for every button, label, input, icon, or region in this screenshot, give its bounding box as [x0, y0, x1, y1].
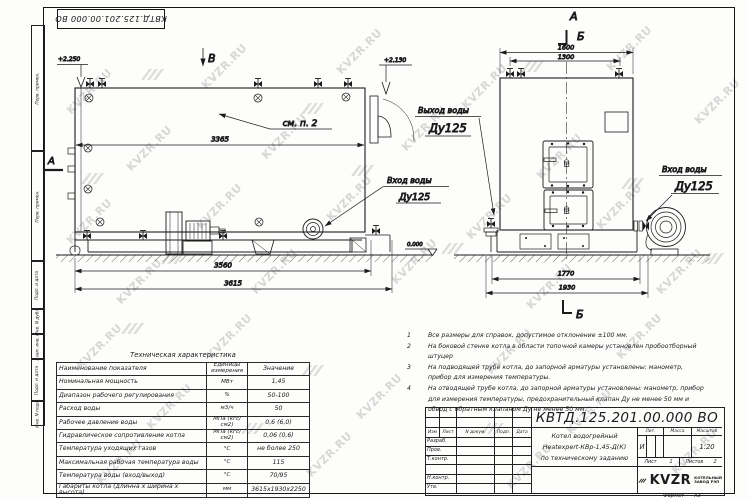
- dim-1300: 1300: [558, 53, 575, 61]
- inlet-water-label: Вход воды: [662, 165, 707, 174]
- spec-col-units: Единицы измерения: [207, 363, 248, 376]
- margin-label: Подп. и дата: [36, 270, 41, 299]
- section-a-label: А: [47, 156, 55, 167]
- mass-label: Масса: [664, 428, 692, 436]
- title-block-cell: [457, 484, 495, 493]
- title-block-cell: [513, 456, 532, 465]
- doc-col-podp: Подп.: [495, 428, 513, 438]
- sheets-cell: Листов 2: [680, 458, 722, 467]
- spec-cell-units: мм: [207, 483, 248, 497]
- spec-row: Гидравлическое сопротивление котлаМПа (к…: [57, 429, 310, 442]
- spec-row: Габариты котла (длинна х ширина х высота…: [57, 483, 310, 497]
- note-number: 1: [407, 331, 428, 342]
- margin-box-perv-primen-2: Перв. примен.: [31, 150, 45, 262]
- document-name-line: по техническому заданию: [532, 453, 637, 464]
- margin-box-vzam-inv: Взам. инв. N: [31, 333, 45, 360]
- section-b-bottom-label: Б: [576, 308, 584, 321]
- spec-row: Расход водым3/ч50: [57, 403, 310, 416]
- title-block-cell: [513, 475, 532, 484]
- spec-cell-units: МПа (кгс/см2): [207, 416, 248, 429]
- lit-value: И: [638, 436, 647, 458]
- spec-cell-value: не более 250: [248, 443, 310, 456]
- note-item: 2 На боковой стенке котла в области топо…: [407, 342, 707, 363]
- title-block-cell: [495, 456, 513, 465]
- dim-3615: 3615: [224, 280, 242, 288]
- spec-cell-value: 50-100: [248, 389, 310, 402]
- dim-3365: 3365: [211, 136, 229, 144]
- spec-cell-units: °С: [207, 443, 248, 456]
- title-block: КВТД.125.201.00.000 ВО Изм Лист N докум.…: [425, 407, 725, 496]
- title-block-cell: [457, 465, 495, 475]
- title-block-cell: [457, 438, 495, 447]
- scale-value: 1:20: [692, 436, 722, 458]
- spec-cell-name: Температура уходящих газов: [57, 443, 207, 456]
- document-name-cell: Котел водогрейный Heatexpert-КВр-1,45-Д(…: [532, 428, 638, 467]
- spec-row: Максимальная рабочая температура воды°С1…: [57, 456, 310, 469]
- title-block-cell: [513, 408, 532, 418]
- sheet-label: Лист: [644, 460, 656, 465]
- title-block-cell: [457, 475, 495, 484]
- spec-col-name: Наименование показателя: [57, 363, 207, 376]
- scale-label: Масштаб: [692, 428, 722, 436]
- spec-cell-name: Номинальная мощность: [57, 376, 207, 389]
- spec-cell-name: Расход воды: [57, 403, 207, 416]
- title-block-cell: [495, 408, 513, 418]
- see-note-label: см. п. 2: [283, 119, 318, 129]
- inlet-water-label: Вход воды: [387, 176, 432, 185]
- format-note: Формат А3: [612, 493, 750, 499]
- margin-box-podp-data-1: Подп. и дата: [31, 260, 45, 310]
- kvzr-logo-icon: [638, 474, 647, 487]
- spec-cell-name: Температура воды (вход/выход): [57, 470, 207, 483]
- note-item: 1 Все размеры для справок, допустимое от…: [407, 331, 707, 342]
- title-block-cell: [495, 475, 513, 484]
- title-block-cell: [495, 447, 513, 456]
- side-view-drawing: +2.250 +2.130 В см. п. 2 3365 А: [45, 48, 449, 293]
- title-block-cell: [513, 438, 532, 447]
- elevation-label: +2.250: [58, 56, 80, 63]
- company-name: KVZR: [650, 473, 692, 488]
- note-number: 2: [407, 342, 428, 363]
- inlet-dn-label: Ду125: [674, 179, 713, 193]
- spec-row: Номинальная мощностьМВт1,45: [57, 376, 310, 389]
- note-text: Все размеры для справок, допустимое откл…: [428, 331, 707, 342]
- notes-list: 1 Все размеры для справок, допустимое от…: [407, 331, 707, 416]
- title-block-cell: [513, 484, 532, 493]
- margin-label: Инв. N подл.: [36, 399, 41, 427]
- title-block-cell: [495, 484, 513, 493]
- sheet-value: 1: [669, 460, 672, 465]
- spec-table-title: Техническая характеристика: [56, 351, 310, 359]
- spec-cell-units: %: [207, 389, 248, 402]
- title-block-cell: [440, 418, 457, 428]
- role-tkontr: Т.контр.: [426, 456, 457, 465]
- title-block-cell: [532, 467, 638, 493]
- document-code-stamp-text: КВТД.125.201.00.000 ВО: [55, 14, 167, 24]
- margin-label: Перв. примен.: [36, 190, 41, 222]
- title-block-cell: [495, 438, 513, 447]
- title-block-cell: [440, 408, 457, 418]
- format-label: Формат: [663, 493, 684, 499]
- title-block-cell: [513, 447, 532, 456]
- spec-row: Диапазон рабочего регулирования%50-100: [57, 389, 310, 402]
- title-block-cell: [495, 465, 513, 475]
- front-inlet-callout: Вход воды Ду125: [646, 165, 722, 221]
- margin-label: Инв. N дубл.: [36, 307, 41, 335]
- title-block-cell: [457, 447, 495, 456]
- spec-cell-value: 70/95: [248, 470, 310, 483]
- spec-cell-value: 0,06 (0,6): [248, 429, 310, 442]
- spec-cell-units: °С: [207, 470, 248, 483]
- spec-cell-value: 3615х1930х2250: [248, 483, 310, 497]
- outlet-dn-label: Ду125: [428, 121, 467, 135]
- role-razrab: Разраб.: [426, 438, 457, 447]
- lit-label: Лит.: [638, 428, 664, 436]
- role-nkontr: Н.контр.: [426, 475, 457, 484]
- role-empty: [426, 465, 457, 475]
- spec-cell-value: 1,45: [248, 376, 310, 389]
- spec-cell-value: 50: [248, 403, 310, 416]
- spec-cell-name: Диапазон рабочего регулирования: [57, 389, 207, 402]
- front-view-drawing: 1600 1300 А Б: [405, 10, 722, 321]
- sheets-value: 2: [714, 460, 717, 465]
- side-elevation-right: +2.130: [379, 57, 412, 94]
- margin-label: Взам. инв. N: [36, 333, 41, 361]
- margin-box-inv-dubl: Инв. N дубл.: [31, 308, 45, 335]
- margin-box-inv-podl: Инв. N подл.: [31, 400, 45, 426]
- section-b-top-label: Б: [577, 30, 585, 43]
- margin-box-perv-primen-1: Перв. примен.: [31, 25, 45, 152]
- document-name-line: Котел водогрейный: [532, 431, 637, 442]
- title-block-cell: [513, 465, 532, 475]
- view-b-label: В: [208, 52, 216, 65]
- title-block-cell: [513, 418, 532, 428]
- dim-1770: 1770: [558, 270, 575, 278]
- spec-cell-value: 0,6 (6,0): [248, 416, 310, 429]
- format-value: А3: [694, 493, 701, 499]
- spec-cell-name: Габариты котла (длинна х ширина х высота…: [57, 483, 207, 497]
- spec-header-row: Наименование показателя Единицы измерени…: [57, 363, 310, 376]
- title-block-cell: [426, 418, 440, 428]
- elevation-zero-label: 0.000: [407, 242, 423, 248]
- company-subtitle-line: ЗАВОД РЭП: [694, 479, 719, 484]
- spec-table: Наименование показателя Единицы измерени…: [56, 362, 310, 498]
- dim-3560: 3560: [214, 262, 232, 270]
- drawing-sheet: KVZR.RU KVZR.RU KVZR.RU KVZR.RU KVZR.RU …: [0, 0, 750, 500]
- document-code-stamp: КВТД.125.201.00.000 ВО: [57, 9, 165, 29]
- doc-col-izm: Изм: [426, 428, 440, 438]
- sheets-label: Листов: [685, 460, 703, 465]
- zero-elevation-mark: 0.000: [405, 242, 437, 256]
- spec-cell-name: Гидравлическое сопротивление котла: [57, 429, 207, 442]
- note-item: 3 На подводящей трубе котла, до запорной…: [407, 363, 707, 384]
- note-text: На боковой стенке котла в области топочн…: [428, 342, 707, 363]
- mass-value-cell: [664, 436, 692, 458]
- inlet-dn-label: Ду125: [398, 192, 430, 203]
- spec-cell-units: °С: [207, 456, 248, 469]
- title-block-cell: [647, 436, 656, 458]
- title-block-cell: [495, 418, 513, 428]
- spec-cell-value: 115: [248, 456, 310, 469]
- company-subtitle: КОТЕЛЬНЫЙ ЗАВОД РЭП: [694, 476, 722, 484]
- spec-col-value: Значение: [248, 363, 310, 376]
- title-block-cell: [426, 408, 440, 418]
- title-block-cell: [457, 456, 495, 465]
- spec-row: Температура уходящих газов°Сне более 250: [57, 443, 310, 456]
- designation-text: КВТД.125.201.00.000 ВО: [536, 410, 718, 426]
- spec-row: Рабочее давление водыМПа (кгс/см2)0,6 (6…: [57, 416, 310, 429]
- spec-cell-name: Рабочее давление воды: [57, 416, 207, 429]
- elevation-label: +2.130: [384, 57, 406, 64]
- spec-cell-name: Максимальная рабочая температура воды: [57, 456, 207, 469]
- side-inlet-callout: Вход воды Ду125: [325, 176, 449, 226]
- title-block-cell: [457, 418, 495, 428]
- spec-cell-units: МПа (кгс/см2): [207, 429, 248, 442]
- title-block-cell: [457, 408, 495, 418]
- company-logo-cell: KVZR КОТЕЛЬНЫЙ ЗАВОД РЭП: [638, 467, 722, 493]
- side-elevation-left: +2.250: [57, 56, 88, 87]
- document-name-line: Heatexpert-КВр-1,45-Д(К): [532, 442, 637, 453]
- note-text: На подводящей трубе котла, до запорной а…: [428, 363, 707, 384]
- doc-col-ndokum: N докум.: [457, 428, 495, 438]
- title-block-cell: [656, 436, 664, 458]
- margin-label: Перв. примен.: [36, 72, 41, 104]
- spec-row: Температура воды (вход/выход)°С70/95: [57, 470, 310, 483]
- spec-cell-units: МВт: [207, 376, 248, 389]
- sheet-cell: Лист 1: [638, 458, 680, 467]
- dim-1930: 1930: [559, 284, 576, 292]
- role-utv: Утв.: [426, 484, 457, 493]
- designation-cell: КВТД.125.201.00.000 ВО: [532, 408, 722, 428]
- spec-cell-units: м3/ч: [207, 403, 248, 416]
- margin-label: Подп. и дата: [36, 365, 41, 394]
- margin-box-podp-data-2: Подп. и дата: [31, 358, 45, 402]
- view-a-label: А: [569, 10, 578, 23]
- outlet-water-label: Выход воды: [418, 106, 469, 115]
- role-prov: Пров.: [426, 447, 457, 456]
- note-number: 3: [407, 363, 428, 384]
- doc-col-list: Лист: [440, 428, 457, 438]
- doc-col-data: Дата: [513, 428, 532, 438]
